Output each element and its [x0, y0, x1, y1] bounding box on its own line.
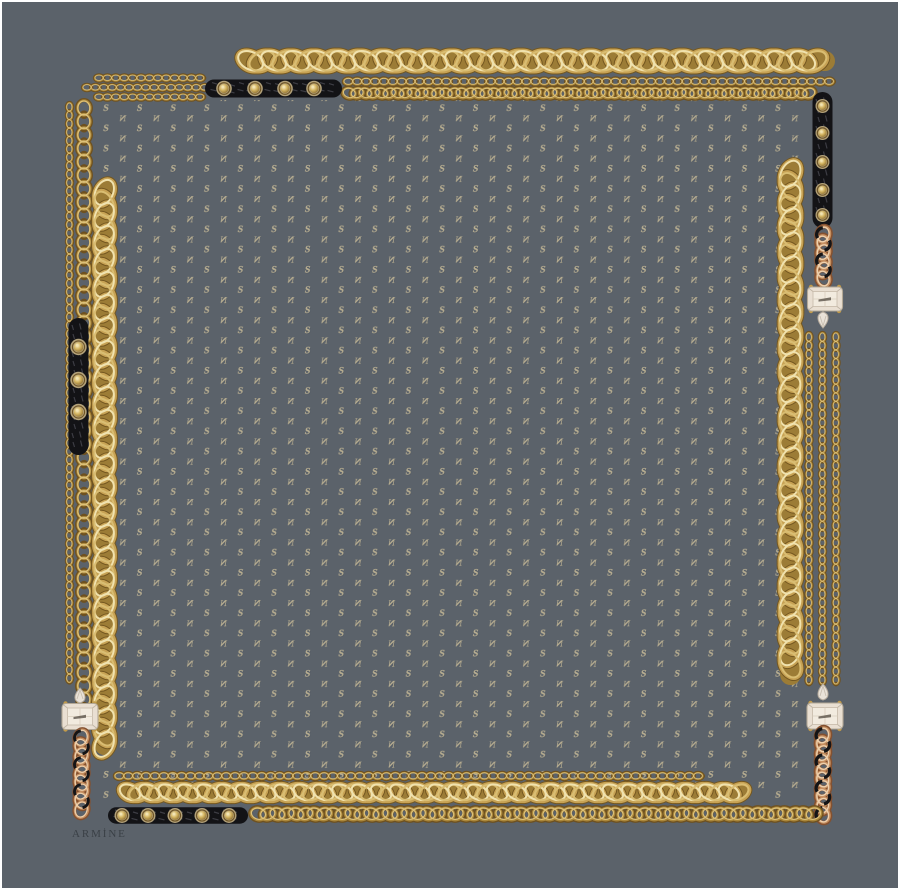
svg-text:ARMİNE: ARMİNE	[72, 828, 127, 840]
